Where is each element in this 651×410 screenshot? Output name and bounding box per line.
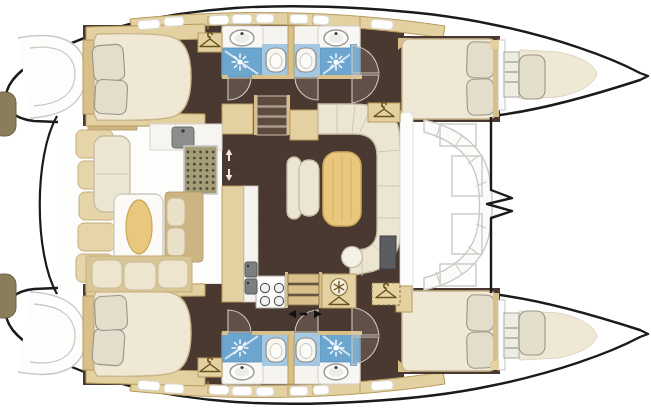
washbasin-fixture xyxy=(230,364,254,380)
cabin-window xyxy=(164,383,184,393)
cabin-window xyxy=(164,16,184,26)
toilet-fixture xyxy=(296,48,316,72)
shower-head-icon xyxy=(328,54,345,71)
cabinet xyxy=(290,110,318,140)
stove-burner xyxy=(274,296,283,305)
salon-front-window-band xyxy=(400,112,413,300)
cabin-window xyxy=(232,386,252,395)
shower-head-icon xyxy=(232,340,249,357)
stove-burner xyxy=(274,283,283,292)
stove-burner xyxy=(260,296,269,305)
stove-burner xyxy=(260,283,269,292)
toilet-fixture xyxy=(266,48,286,72)
toilet-fixture xyxy=(266,338,286,362)
foredeck xyxy=(424,117,512,293)
tv-cabinet xyxy=(380,236,396,269)
toilet-fixture xyxy=(296,338,316,362)
cabin-window xyxy=(290,386,308,395)
cabin-window xyxy=(256,387,274,396)
cabin-window xyxy=(313,15,329,25)
forward-crossbeam xyxy=(487,117,512,293)
salon-bench[interactable] xyxy=(299,160,319,216)
stairs-top-hull[interactable] xyxy=(254,95,290,135)
cabin-window xyxy=(232,14,252,23)
cabin-window xyxy=(290,14,308,23)
cabin-window xyxy=(371,19,394,30)
cockpit-table-top xyxy=(126,200,152,254)
chart-cabinet xyxy=(222,104,253,134)
cabin-window xyxy=(256,14,274,23)
catamaran-deck-plan xyxy=(0,0,651,410)
washbasin-fixture xyxy=(230,30,254,46)
cabin-window xyxy=(209,385,229,395)
stool[interactable] xyxy=(342,247,363,268)
cabin-window xyxy=(138,19,161,30)
optional-wardrobe xyxy=(372,283,400,305)
cabin-window xyxy=(138,380,161,391)
fridge-snowflake-icon xyxy=(331,279,348,296)
forward-bench[interactable] xyxy=(86,256,192,292)
shower-head-icon xyxy=(328,340,345,357)
aft-wardrobe-top xyxy=(198,33,222,52)
cabin-window xyxy=(209,15,229,25)
aft-wardrobe-bottom xyxy=(198,358,222,377)
cabin-window xyxy=(371,380,394,391)
washbasin-fixture xyxy=(324,364,348,380)
shower-head-icon xyxy=(232,54,249,71)
floorplan-canvas xyxy=(0,0,651,410)
forward-wardrobe xyxy=(368,103,400,122)
stairs-bottom-hull[interactable] xyxy=(285,272,322,308)
washbasin-fixture xyxy=(324,30,348,46)
cabin-window xyxy=(313,385,329,395)
aft-crossbeam-arc xyxy=(40,116,57,294)
